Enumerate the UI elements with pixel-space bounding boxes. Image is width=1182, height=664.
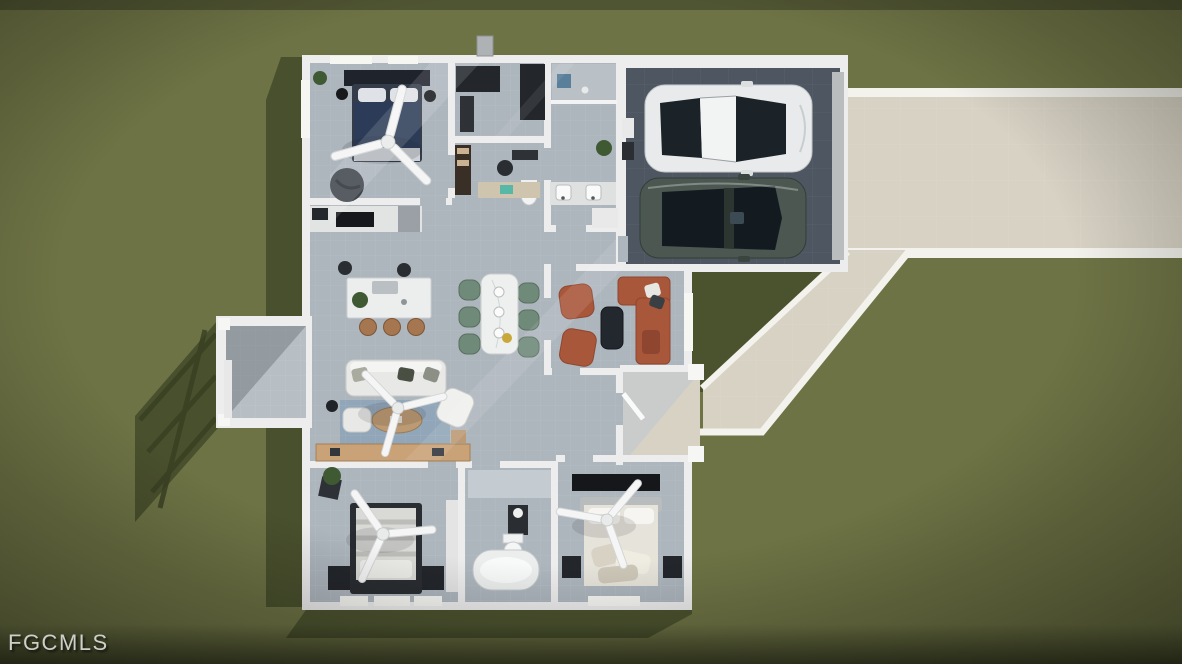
- vignette: [0, 0, 1182, 664]
- floorplan-render: FGCMLS: [0, 0, 1182, 664]
- top-fade: [0, 0, 1182, 10]
- fgcmls-watermark: FGCMLS: [8, 630, 109, 656]
- bottom-fade: [0, 624, 1182, 664]
- scene-canvas: [0, 0, 1182, 664]
